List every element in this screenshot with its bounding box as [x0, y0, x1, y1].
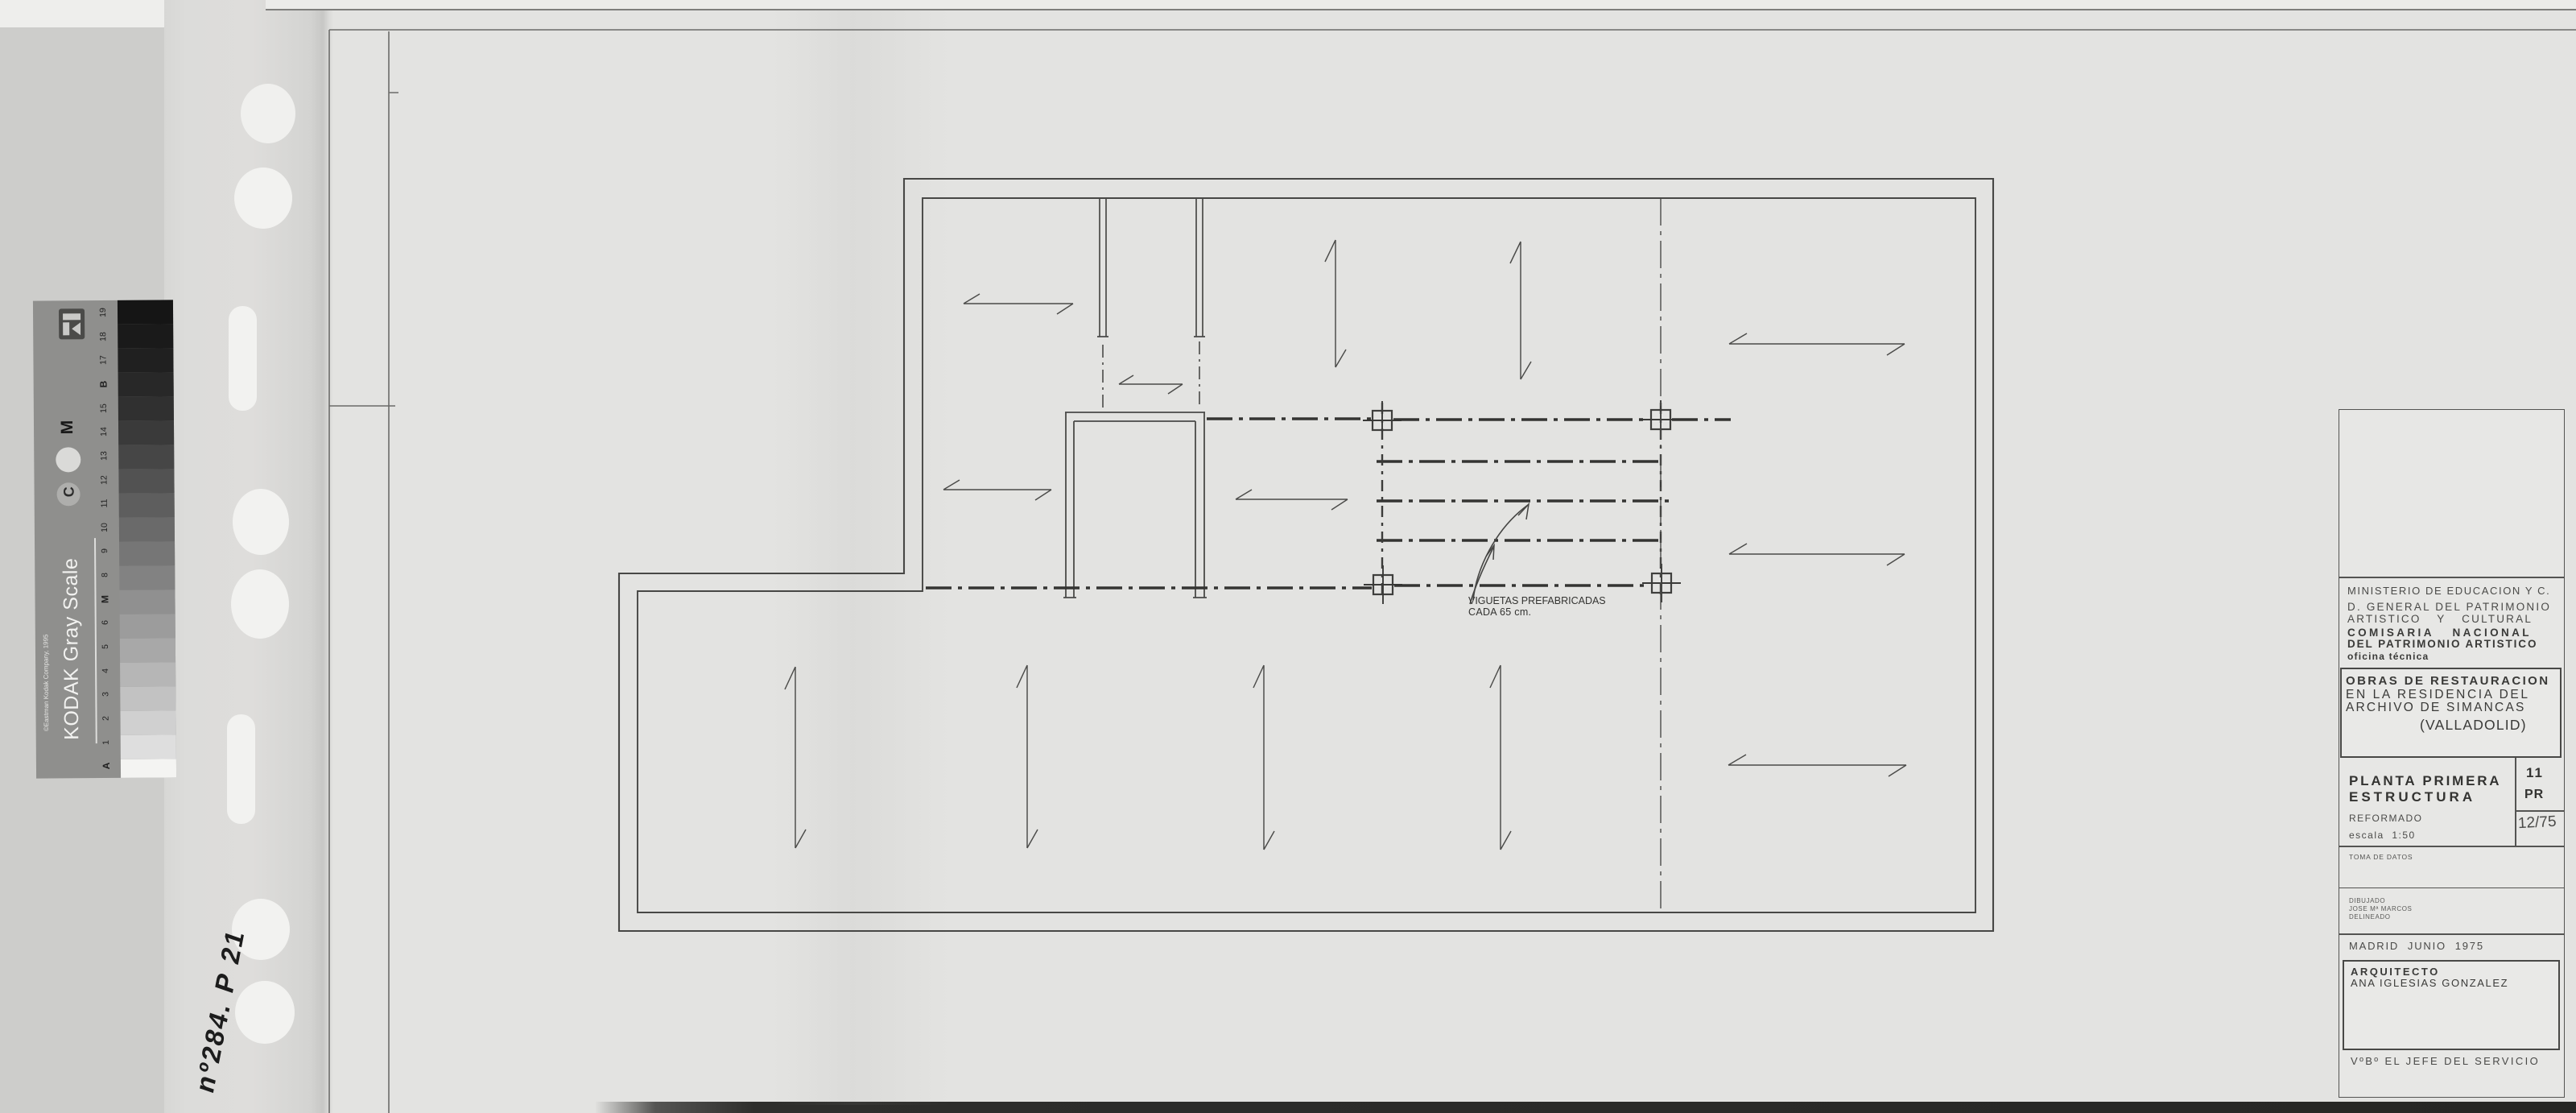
svg-text:VIGUETAS PREFABRICADAS: VIGUETAS PREFABRICADAS	[1468, 595, 1606, 606]
svg-text:CADA 65 cm.: CADA 65 cm.	[1468, 606, 1531, 618]
